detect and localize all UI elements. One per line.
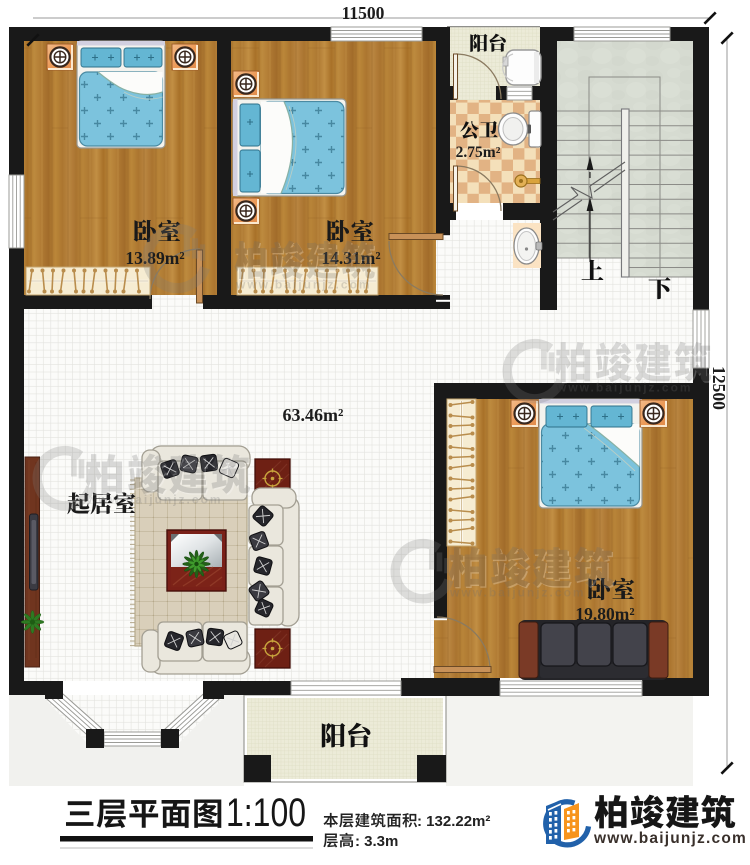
svg-text:11500: 11500 [342,3,385,23]
svg-text:63.46m²: 63.46m² [283,405,344,425]
svg-text:www.baijunjz.com: www.baijunjz.com [556,380,693,394]
svg-text:www.baijunjz.com: www.baijunjz.com [593,830,747,847]
svg-text:1:100: 1:100 [226,790,306,835]
svg-text:2.75m²: 2.75m² [456,144,501,161]
svg-text:: 132.22m²: : 132.22m² [417,813,490,830]
svg-text:www.baijunjz.com: www.baijunjz.com [86,492,223,506]
svg-text:www.baijunjz.com: www.baijunjz.com [235,278,372,292]
svg-text:12500: 12500 [709,366,729,410]
svg-text:www.baijunjz.com: www.baijunjz.com [449,585,586,599]
svg-text:19.80m²: 19.80m² [575,604,634,624]
svg-text:: 3.3m: : 3.3m [355,833,398,850]
svg-text:13.89m²: 13.89m² [125,248,184,268]
